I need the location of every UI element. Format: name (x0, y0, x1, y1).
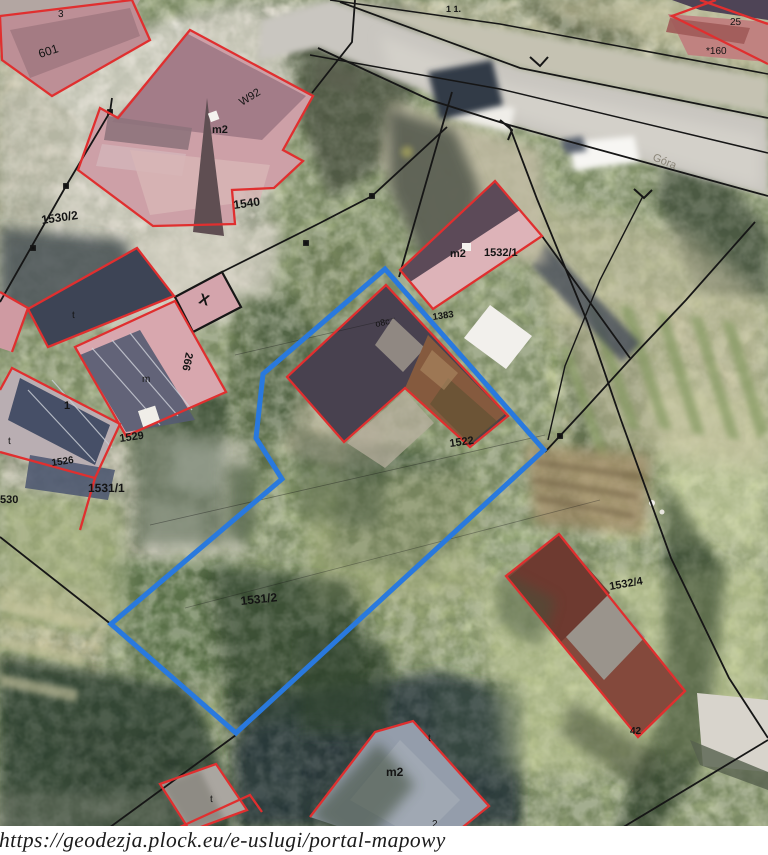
svg-text:m2: m2 (386, 765, 404, 779)
svg-text:m2: m2 (212, 124, 228, 136)
svg-text:t: t (210, 794, 213, 805)
svg-text:t: t (8, 436, 11, 447)
svg-text:*160: *160 (706, 46, 727, 57)
svg-text:https://geodezja.plock.eu/e-us: https://geodezja.plock.eu/e-uslugi/porta… (0, 828, 446, 852)
svg-text:1532/1: 1532/1 (484, 247, 518, 259)
svg-text:m: m (142, 374, 150, 385)
svg-text:42: 42 (630, 726, 642, 737)
svg-text:t: t (428, 733, 431, 744)
svg-text:530: 530 (0, 494, 18, 506)
svg-text:t: t (72, 310, 75, 321)
svg-text:1 1.: 1 1. (446, 4, 461, 14)
svg-text:1531/1: 1531/1 (88, 481, 125, 495)
svg-text:3: 3 (58, 9, 64, 20)
svg-text:25: 25 (730, 17, 742, 28)
svg-text:m2: m2 (450, 248, 466, 260)
svg-text:1: 1 (64, 400, 70, 412)
